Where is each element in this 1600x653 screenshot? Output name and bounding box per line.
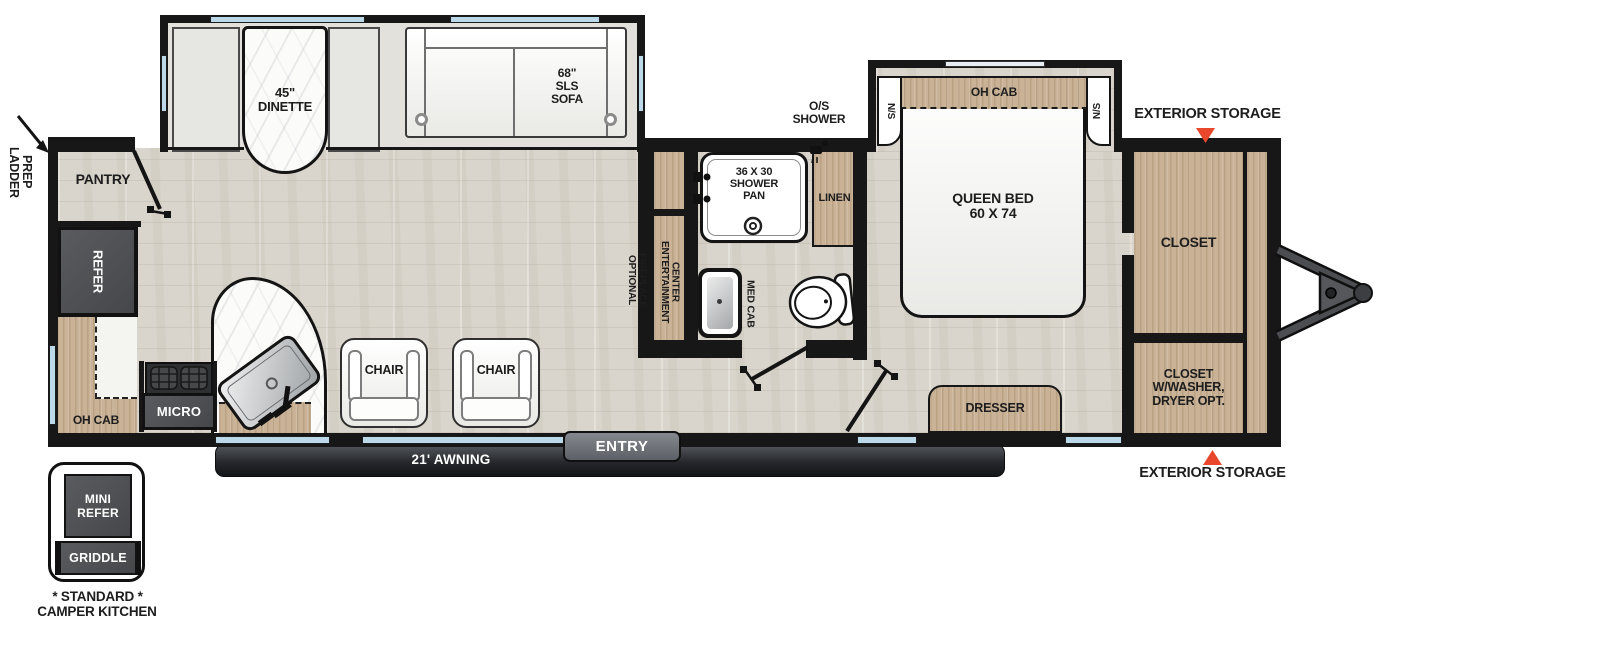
ladder-label-col: LADDER — [7, 147, 20, 198]
dinette-table: 45" DINETTE — [242, 26, 328, 174]
camper-kitchen-caption1: * STANDARD * — [25, 590, 170, 605]
ladder-prep-label: LADDER PREP — [2, 112, 38, 232]
window-bottom-closet — [1065, 436, 1122, 444]
linen-cabinet: LINEN — [812, 150, 857, 247]
sofa-label-line2: SLS — [556, 80, 579, 93]
camper-kitchen-inset: MINI REFER GRIDDLE — [48, 462, 145, 582]
hitch-icon — [1278, 250, 1372, 336]
fireplace-label-col: FIREPLACE — [636, 253, 647, 308]
slide-front-line-left — [168, 147, 244, 150]
closet-washer-label2: W/WASHER, — [1153, 381, 1225, 395]
window-slide-top-b — [450, 16, 600, 23]
slide-front-line-right — [326, 147, 637, 150]
closet-front-divider — [1243, 152, 1247, 433]
dresser-label: DRESSER — [965, 402, 1024, 416]
sofa-cupholder-left — [415, 113, 428, 126]
sofa-label-line3: SOFA — [551, 93, 583, 106]
bed-slide-wall-left — [868, 60, 876, 152]
shower-pan: 36 X 30 SHOWER PAN — [700, 152, 808, 243]
window-bottom-bedroom — [857, 436, 917, 444]
closet-washer: CLOSET W/WASHER, DRYER OPT. — [1134, 343, 1243, 433]
exterior-storage-bottom-label: EXTERIOR STORAGE — [1130, 466, 1295, 482]
bath-vanity — [698, 268, 742, 338]
bath-wall-bottom-left — [646, 340, 742, 358]
chair-right-label: CHAIR — [454, 364, 538, 378]
rv-floorplan: OH CAB REFER MICRO PANTRY 45" DINETTE 68… — [0, 0, 1600, 653]
os-shower-line1: O/S — [809, 100, 829, 113]
chair-right: CHAIR — [452, 338, 540, 428]
sofa-cushion-divider — [513, 49, 515, 136]
mini-refer-label2: REFER — [77, 506, 119, 520]
bath-wall-right — [853, 143, 867, 360]
entry-label: ENTRY — [596, 438, 649, 455]
bath-wall-bottom-right — [806, 340, 867, 358]
sofa: 68" SLS SOFA — [405, 27, 627, 138]
dinette-label-line1: 45" — [275, 86, 295, 100]
chair-right-seat — [461, 397, 531, 421]
pantry-label: PANTRY — [62, 172, 144, 187]
front-wardrobe-strip — [1247, 152, 1267, 433]
entertainment-label-col1: ENTERTAINMENT — [659, 241, 670, 323]
refrigerator: REFER — [57, 226, 138, 317]
awning-label: 21' AWNING — [371, 452, 531, 467]
closet-washer-label1: CLOSET — [1164, 368, 1214, 382]
chair-left-seat — [349, 397, 419, 421]
wall-front — [1267, 138, 1281, 447]
dinette-bench-left — [172, 27, 240, 152]
kitchen-oh-cab-label: OH CAB — [58, 414, 134, 427]
window-left-wall — [49, 345, 56, 425]
closet-wall-left-lower — [1122, 255, 1134, 433]
med-cab-label-text: MED CAB — [744, 280, 755, 328]
wall-top-left — [48, 137, 135, 152]
bedroom-oh-cab-label: OH CAB — [971, 86, 1017, 99]
queen-bed: QUEEN BED 60 X 74 — [900, 80, 1086, 318]
exterior-storage-top-label: EXTERIOR STORAGE — [1125, 107, 1290, 123]
sofa-cupholder-right — [604, 113, 617, 126]
mini-refer-label1: MINI — [85, 492, 111, 506]
bath-wall-left — [686, 143, 698, 342]
refer-top-wall — [57, 221, 141, 227]
window-bed-slide-top — [945, 61, 1045, 67]
dinette-label-line2: DINETTE — [258, 100, 312, 114]
camper-kitchen-caption2: CAMPER KITCHEN — [18, 605, 176, 620]
ent-center-shelf — [652, 209, 686, 216]
optional-label-col: OPTIONAL — [626, 255, 637, 305]
prep-label-col: PREP — [20, 155, 33, 188]
sofa-label-line1: 68" — [558, 67, 576, 80]
exterior-storage-bottom-arrow-icon — [1203, 450, 1222, 465]
optional-fireplace-label: OPTIONAL FIREPLACE — [622, 232, 650, 328]
entertainment-center-cabinet: ENTERTAINMENT CENTER — [652, 143, 686, 350]
ns-right-label: N/S — [1093, 103, 1104, 119]
closet-upper: CLOSET — [1134, 152, 1243, 333]
queen-bed-label2: 60 X 74 — [970, 206, 1017, 221]
os-shower-label: O/S SHOWER — [778, 100, 860, 126]
dresser: DRESSER — [928, 385, 1062, 433]
med-cab-label: MED CAB — [742, 266, 758, 342]
window-slide-top-a — [210, 16, 365, 23]
queen-bed-label1: QUEEN BED — [952, 191, 1033, 206]
refer-label: REFER — [91, 250, 105, 293]
sofa-back — [425, 29, 607, 49]
closet-label: CLOSET — [1161, 235, 1217, 250]
entertainment-label-col2: CENTER — [669, 262, 680, 302]
micro-label: MICRO — [157, 404, 201, 419]
bath-sink-drain — [717, 299, 722, 304]
kitchen-oh-cab-dashed — [95, 317, 137, 399]
ns-left-label: N/S — [884, 103, 895, 119]
griddle-label: GRIDDLE — [69, 551, 127, 565]
chair-left-label: CHAIR — [342, 364, 426, 378]
wall-top-mid — [637, 138, 876, 152]
nightstand-right: N/S — [1086, 76, 1111, 146]
dinette-bench-right — [328, 27, 380, 152]
mini-refer: MINI REFER — [64, 474, 132, 538]
closet-wall-left-upper — [1122, 152, 1134, 233]
wall-top-right — [1114, 138, 1281, 152]
bedroom-oh-cab: OH CAB — [890, 76, 1098, 109]
window-bottom-kitchen — [215, 436, 330, 444]
window-slide-left — [161, 55, 167, 112]
nightstand-left: N/S — [877, 76, 902, 146]
griddle: GRIDDLE — [59, 541, 137, 575]
closet-wall-divider — [1122, 333, 1243, 343]
window-bottom-living — [362, 436, 570, 444]
shower-pan-label3: PAN — [743, 191, 765, 203]
window-slide-right — [638, 55, 644, 112]
microwave: MICRO — [142, 393, 216, 430]
shower-pan-label2: SHOWER — [730, 179, 778, 191]
closet-washer-label3: DRYER OPT. — [1152, 395, 1225, 409]
entry-door-badge: ENTRY — [563, 431, 681, 462]
chair-left: CHAIR — [340, 338, 428, 428]
linen-label: LINEN — [818, 193, 850, 205]
os-shower-line2: SHOWER — [793, 113, 846, 126]
